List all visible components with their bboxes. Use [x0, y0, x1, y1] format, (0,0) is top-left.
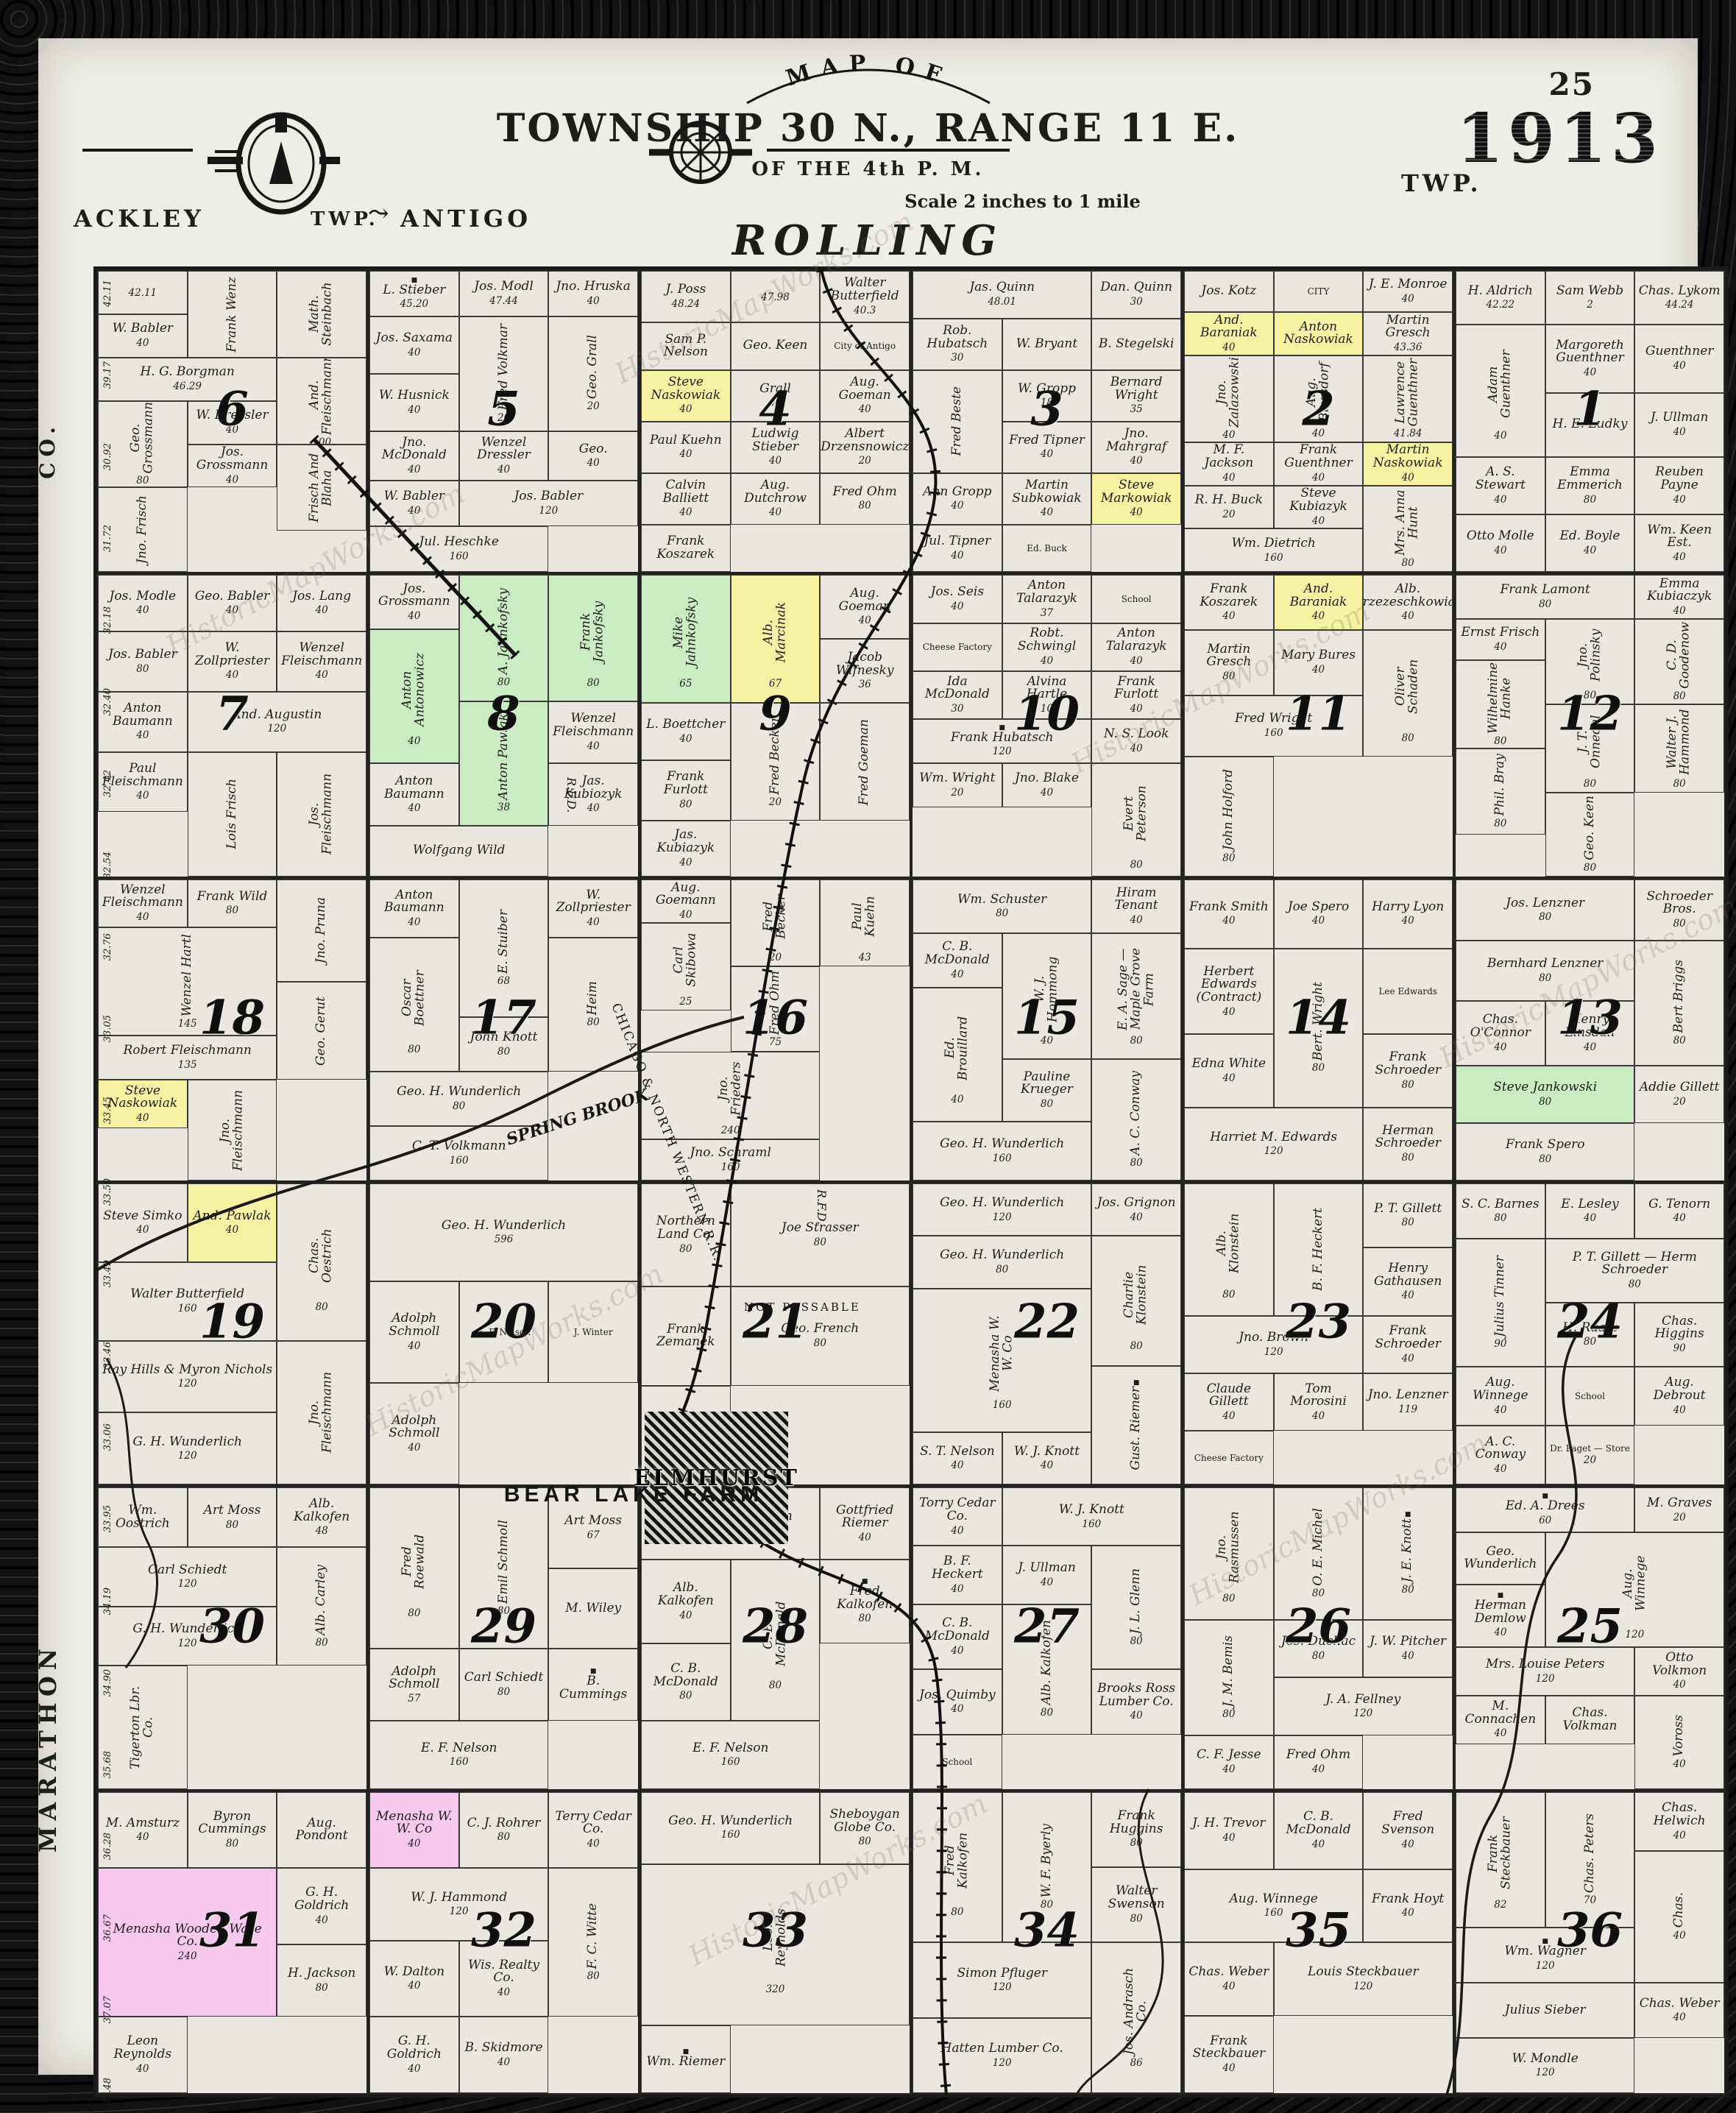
owner-name: Lawrence Guenthner: [1395, 358, 1420, 426]
parcel: Jos. Grignon40: [1091, 1183, 1181, 1236]
owner-name: Frank Steckbauer: [1188, 2035, 1270, 2061]
acreage: 40: [587, 802, 600, 814]
parcel: Charlie Klonstein80: [1091, 1236, 1181, 1366]
acreage: 38: [497, 801, 510, 813]
parcel: A. Jahnkofsky80: [459, 575, 549, 701]
owner-name: Robert Fleischmann: [123, 1044, 251, 1058]
acreage: 80: [453, 1100, 465, 1112]
parcel: Carl Skibowa25: [641, 923, 731, 1011]
owner-name: Wenzel Fleischmann: [280, 642, 363, 668]
owner-name: Alb. Klonstein: [1216, 1199, 1241, 1287]
owner-name: Fred Ohm: [1286, 1749, 1350, 1762]
owner-name: M. F. Jackson: [1188, 444, 1270, 470]
owner-name: Julius Tinner: [1494, 1256, 1507, 1337]
acreage: 40: [1494, 1463, 1506, 1475]
owner-name: G. H. Goldrich: [373, 2035, 456, 2061]
parcel: Frank Guenthner40: [1274, 442, 1364, 486]
parcel: Leo. Reynolds320: [641, 1864, 910, 2025]
parcel: Frank Koszarek: [641, 525, 731, 573]
parcels: Torry Cedar Co.40W. J. Knott160B. F. Hec…: [913, 1487, 1181, 1788]
parcel: Mary Bures40: [1274, 630, 1364, 696]
parcels: ■L. Stieber45.20Jos. Modl47.44Jno. Hrusk…: [369, 271, 638, 572]
owner-name: Harriet M. Edwards: [1210, 1131, 1337, 1144]
parcel: Hatten Lumber Co.120: [913, 2018, 1091, 2093]
owner-name: C. B. McDonald: [916, 941, 999, 966]
acreage: 70: [1584, 1894, 1596, 1906]
acreage: 82: [1494, 1899, 1506, 1911]
owner-name: Oscar Boettner: [401, 954, 427, 1042]
owner-name: Walter Butterfield: [823, 277, 906, 302]
owner-name: Geo. Grall: [587, 335, 600, 399]
parcel: Alb. Marcinak67: [731, 575, 821, 703]
parcel: Jno. Brown120: [1184, 1316, 1363, 1373]
owner-name: Wolfgang Wild: [413, 844, 505, 857]
acreage: 120: [178, 1450, 197, 1462]
parcel: Anton Baumann40: [369, 879, 459, 938]
acreage: 40: [1673, 1404, 1686, 1416]
acreage: 40: [587, 1838, 600, 1850]
parcel: Albert Drzensnowicz20: [820, 422, 910, 473]
parcel: N. S. Look40: [1091, 719, 1181, 763]
parcel: Guenthner40: [1634, 325, 1724, 393]
parcel: Geo. H. Wunderlich80: [913, 1236, 1091, 1288]
parcel: Fred Kalkofen80: [913, 1792, 1002, 1943]
acreage: 120: [1536, 2067, 1555, 2078]
owner-name: W. J. Knott: [1059, 1504, 1124, 1517]
acreage: 80: [1584, 778, 1596, 790]
parcel: Alb. Kalkofen48: [277, 1487, 366, 1547]
owner-name: Fred Kalkofen: [944, 1816, 970, 1905]
parcel: J. Ullman40: [1634, 393, 1724, 457]
acreage: 68: [497, 975, 510, 987]
acreage: 40: [769, 397, 782, 408]
parcel: Sam Webb2: [1545, 271, 1635, 325]
edge-left-co: CO.: [35, 421, 60, 479]
owner-name: Jos. Quimby: [919, 1689, 996, 1702]
owner-name: Herbert Edwards (Contract): [1188, 966, 1270, 1005]
acreage: 80: [859, 1836, 871, 1847]
owner-name: W. J. Hommong: [1034, 945, 1060, 1033]
section-18: Wenzel Fleischmann40Frank Wild80Jno. Pru…: [96, 878, 368, 1182]
parcel: B. Skidmore40: [459, 2017, 549, 2093]
acreage: 40: [1222, 1006, 1235, 1018]
owner-name: W. J. Knott: [1014, 1445, 1080, 1459]
owner-name: Jul. Tipner: [924, 535, 991, 548]
owner-name: Martin Subkowiak: [1006, 479, 1088, 505]
parcel: Julius Tinner90: [1456, 1239, 1545, 1367]
acreage: 40: [408, 404, 420, 416]
parcel: Jno. Frieders240: [641, 1052, 820, 1139]
owner-name: C. D. Goodenow: [1666, 622, 1692, 689]
owner-name: Frank Guenthner: [1278, 444, 1360, 470]
acreage: 40: [1673, 605, 1686, 617]
owner-name: Byron Cummings: [191, 1811, 274, 1836]
parcel: H. G. Borgman46.29: [98, 358, 277, 401]
parcel: Carl Schiedt120: [98, 1547, 277, 1607]
owner-name: H. Jackson: [288, 1967, 355, 1981]
owner-name: Alb. Kalkofen: [645, 1582, 727, 1607]
owner-name: Martin Naskowiak: [1367, 444, 1449, 470]
acreage: 10: [1041, 703, 1053, 715]
acreage: 40: [951, 1583, 963, 1595]
section-27: Torry Cedar Co.40W. J. Knott160B. F. Hec…: [911, 1486, 1183, 1790]
acreage: 41.84: [1394, 428, 1423, 439]
acreage: 80: [408, 1044, 420, 1055]
acreage: 40: [1673, 1679, 1686, 1691]
township-name: ROLLING: [38, 216, 1698, 265]
acreage: 80: [1539, 911, 1551, 923]
acreage: 80: [1130, 1157, 1143, 1169]
edge-acreage-number: 31.72: [102, 525, 113, 552]
acreage: 45.20: [400, 298, 429, 310]
owner-name: Jos. Grossmann: [373, 583, 456, 609]
owner-name: Simon Pfluger: [957, 1967, 1047, 1981]
acreage: 20: [1222, 509, 1235, 520]
parcel: Anton Baumann40: [369, 763, 459, 826]
parcel: Alb. Klonstein80: [1184, 1183, 1274, 1316]
acreage: 40: [679, 1610, 692, 1621]
parcel: W. J. Hommong40: [1002, 933, 1092, 1058]
parcel: Fred Beste: [913, 370, 1002, 473]
landmark-parcel: City of Antigo: [820, 322, 910, 370]
acreage: 40: [1312, 610, 1325, 622]
owner-name: Bernhard Lenzner: [1487, 958, 1604, 971]
landmark-parcel: School: [913, 1735, 1002, 1789]
parcel: Geo. H. Wunderlich160: [641, 1792, 820, 1864]
landmark-parcel: J. Winter: [548, 1281, 638, 1383]
owner-name: Wenzel Dressler: [463, 436, 545, 462]
acreage: 160: [1264, 1907, 1283, 1919]
owner-name: Chas. Oestrich: [308, 1211, 334, 1300]
owner-name: Frank Schroeder: [1367, 1325, 1449, 1351]
parcel: Northern Land Co.80: [641, 1183, 731, 1286]
parcel: Edna White40: [1184, 1034, 1274, 1107]
parcel: Chas. O'Connor40: [1456, 1001, 1545, 1066]
owner-name: Robt. Schwingl: [1006, 627, 1088, 653]
owner-name: Guenthner: [1645, 345, 1713, 358]
parcel: Steve Jankowski80: [1456, 1066, 1634, 1123]
owner-name: Jos. Babler: [514, 490, 583, 503]
acreage: 40: [136, 337, 149, 349]
acreage: 40: [951, 1459, 963, 1471]
parcel: Oliver Schaden80: [1363, 630, 1453, 757]
acreage: 40: [1041, 655, 1053, 667]
acreage: 40: [1312, 915, 1325, 927]
parcel: And. Baraniak40: [1274, 575, 1364, 629]
parcel: Geo. H. Wunderlich80: [369, 1072, 548, 1126]
owner-name: Herman Demlow: [1459, 1599, 1542, 1625]
acreage: 20: [1673, 1096, 1686, 1108]
owner-name: Aug. Dutchrow: [734, 479, 817, 505]
acreage: 20: [497, 412, 510, 424]
acreage: 40: [1673, 1758, 1686, 1770]
section-36: Frank Steckbauer82Chas. Peters70Chas. He…: [1454, 1791, 1726, 2095]
parcel: Pauline Krueger80: [1002, 1059, 1092, 1122]
wheel-emblem-icon: [649, 112, 752, 193]
parcel: F. C. Witte80: [548, 1868, 638, 2017]
acreage: 30: [951, 352, 963, 364]
owner-name: H. Raatz: [1562, 1322, 1618, 1335]
acreage: 20: [587, 400, 600, 412]
parcel: Henry Linsdall40: [1545, 1001, 1635, 1066]
parcel: Frank Schroeder40: [1363, 1316, 1453, 1373]
edge-acreage-number: 36.28: [102, 1833, 113, 1860]
owner-name: Jno. Brown: [1239, 1331, 1308, 1345]
parcel: Wm. Keen Est.40: [1634, 514, 1724, 572]
parcel: Jno. Fleischmann: [188, 1080, 277, 1181]
owner-name: Frank Furlott: [645, 771, 727, 796]
parcels: Geo. H. Wunderlich160Leo. Reynolds320She…: [641, 1792, 910, 2093]
acreage: 40: [497, 2056, 510, 2068]
parcel: Aug. Winnege160: [1184, 1869, 1363, 1943]
owner-name: Anton Naskowiak: [1278, 321, 1360, 347]
owner-name: Jno. Blake: [1015, 772, 1079, 785]
parcel: Fred Volkmar20: [459, 316, 549, 431]
landmark-parcel: School: [1545, 1367, 1635, 1426]
parcel: Jacob Wifnesky36: [820, 639, 910, 703]
parcel: Voross40: [1634, 1696, 1724, 1789]
acreage: 40: [408, 2063, 420, 2075]
parcel: C. T. Volkmann160: [369, 1126, 548, 1181]
acreage: 80: [1222, 1708, 1235, 1720]
parcel: Geo. Keen80: [1545, 793, 1635, 877]
parcel: G. Tenorn40: [1634, 1183, 1724, 1239]
parcel: Joe Spero40: [1274, 879, 1364, 949]
edge-acreage-number: 34.19: [102, 1588, 113, 1615]
owner-name: Fred Volkmar: [497, 324, 511, 410]
landmark-parcel: Cheese Factory: [1184, 1431, 1274, 1484]
acreage: 160: [721, 1161, 740, 1173]
owner-name: Geo. H. Wunderlich: [397, 1086, 521, 1099]
owner-name: B. F. Heckert: [916, 1555, 999, 1581]
section-23: Alb. Klonstein80B. F. HeckertP. T. Gille…: [1183, 1182, 1454, 1486]
section-33: Geo. H. Wunderlich160Leo. Reynolds320She…: [640, 1791, 911, 2095]
owner-name: Jos. Modle: [110, 590, 177, 604]
parcel: Addie Gillett20: [1634, 1066, 1724, 1123]
parcel: Aug. Debrout40: [1634, 1367, 1724, 1426]
owner-name: Wm. Schuster: [957, 893, 1046, 907]
acreage: 40: [1130, 506, 1143, 518]
parcel: Chas. Weber40: [1634, 1983, 1724, 2038]
owner-name: Wm. Riemer: [646, 2056, 725, 2069]
acreage: 40: [1130, 914, 1143, 926]
parcel: ■Ed. A. Drees60: [1456, 1487, 1634, 1532]
parcel: Adolph Schmoll40: [369, 1383, 459, 1484]
parcel: Heim80: [548, 938, 638, 1072]
parcel: Fred Becker20: [731, 703, 821, 821]
acreage: 240: [178, 1950, 197, 1962]
owner-name: G. H. Wunderlich: [132, 1623, 242, 1636]
acreage: 40: [1222, 341, 1235, 353]
parcel: ■Wm. Wagner120: [1456, 1928, 1634, 1983]
acreage: 40: [1673, 360, 1686, 372]
acreage: 30: [1130, 296, 1143, 308]
parcel: And. Pawlak40: [188, 1183, 277, 1262]
owner-name: W. Babler: [384, 490, 444, 503]
owner-name: C. B. McDonald: [645, 1663, 727, 1688]
township-map: 42.11Frank WenzMath. SteinbachH. G. Borg…: [93, 266, 1729, 2098]
acreage: 80: [587, 1970, 600, 1982]
parcel: H. Jackson80: [277, 1944, 366, 2017]
acreage: 80: [587, 677, 600, 689]
owner-name: Aug. Goemann: [645, 882, 727, 907]
owner-name: Jos. Fleischmann: [308, 770, 334, 858]
owner-name: School: [1575, 1392, 1605, 1401]
owner-name: A. C. Conway: [1459, 1436, 1542, 1462]
acreage: 40: [136, 1112, 149, 1124]
acreage: 80: [1130, 1837, 1143, 1849]
acreage: 40: [1041, 1459, 1053, 1471]
owner-name: Carl Schiedt: [148, 1564, 227, 1577]
owner-name: H. G. Borgman: [140, 366, 234, 379]
owner-name: G. H. Goldrich: [280, 1886, 363, 1912]
parcel: Aug. Winnege40: [1456, 1367, 1545, 1426]
acreage: 40: [679, 506, 692, 518]
section-13: Jos. Lenzner80Bernhard Lenzner80Schroede…: [1454, 878, 1726, 1182]
acreage: 80: [679, 1243, 692, 1255]
owner-name: Geo. H. Wunderlich: [442, 1220, 566, 1233]
owner-name: A. C. Conway: [1130, 1071, 1143, 1155]
acreage: 40: [679, 403, 692, 415]
acreage: 40: [136, 790, 149, 801]
acreage: 40: [1673, 1830, 1686, 1841]
section-24: S. C. Barnes80E. Lesley40G. Tenorn40Juli…: [1454, 1182, 1726, 1486]
parcel: J. A. Fellney120: [1274, 1677, 1453, 1735]
owner-name: Jos. Lang: [292, 590, 351, 604]
acreage: 120: [178, 1638, 197, 1649]
owner-name: Menasha Wooden Ware Co.: [102, 1923, 273, 1949]
owner-name: Ed. Boyle: [1560, 530, 1620, 543]
acreage: 43.36: [1394, 341, 1423, 353]
owner-name: O. E. Michel: [1312, 1508, 1325, 1586]
parcel: Aug. Winnege120: [1545, 1532, 1724, 1647]
parcels: Jno. Rasmussen80O. E. Michel80■J. E. Kno…: [1184, 1487, 1453, 1788]
owner-name: Chas. Lykom: [1639, 285, 1721, 298]
owner-name: B. Skidmore: [464, 2042, 542, 2055]
acreage: 80: [1494, 735, 1506, 747]
acreage: 80: [316, 1637, 328, 1649]
owner-name: Geo. Gerut: [315, 997, 328, 1066]
parcel: E. A. Sage — Maple Grove Farm80: [1091, 933, 1181, 1058]
owner-name: Alvina Hartle: [1006, 676, 1088, 701]
owner-name: Geo. French: [781, 1323, 859, 1336]
parcel: W. J. Knott40: [1002, 1432, 1092, 1484]
acreage: 37: [1041, 607, 1053, 619]
acreage: 40: [679, 909, 692, 921]
owner-name: J. Winter: [574, 1328, 613, 1337]
parcel: C. D. Goodenow80: [1634, 619, 1724, 704]
edge-acreage-number: 32.40: [102, 688, 113, 715]
owner-name: J. E. Monroe: [1369, 278, 1448, 291]
parcel: Phil. Bray80: [1456, 748, 1545, 835]
acreage: 40: [679, 448, 692, 460]
parcel: J. E. Monroe40: [1363, 271, 1453, 312]
landmark-parcel: Ed. Buck: [1002, 525, 1092, 573]
residence-icon: ■: [1405, 1512, 1411, 1518]
acreage: 80: [769, 1680, 782, 1691]
acreage: 40: [1402, 1907, 1414, 1919]
parcel: W. F. Byerly80: [1002, 1792, 1092, 1943]
parcel: Aug. Pondont: [277, 1792, 366, 1869]
parcel: Frank Lamont80: [1456, 575, 1634, 619]
owner-name: Alb. Grzezeschkowiak: [1363, 583, 1453, 609]
owner-name: Wm. Dietrich: [1231, 537, 1315, 551]
parcel: Jno. Blake40: [1002, 763, 1092, 807]
owner-name: Jas. Kubiazyk: [645, 829, 727, 854]
scale-note: Scale 2 inches to 1 mile: [347, 191, 1698, 212]
owner-name: C. B. McDonald: [916, 1617, 999, 1643]
section-15: Wm. Schuster80Hiram Tenant40C. B. McDona…: [911, 878, 1183, 1182]
acreage: 160: [1264, 727, 1283, 739]
owner-name: Jno. Zalazowski: [1216, 357, 1241, 428]
owner-name: And. Fleischmann: [308, 358, 334, 435]
section-7: Jos. Modle40Geo. Babler40Jos. Lang40Jos.…: [96, 573, 368, 877]
parcel: Chas. Helwich40: [1634, 1792, 1724, 1851]
parcel: C. B. McDonald40: [913, 933, 1002, 988]
owner-name: J. T. Onnedal: [1577, 707, 1603, 776]
section-25: ■Ed. A. Drees60M. Graves20Geo. Wunderlic…: [1454, 1486, 1726, 1790]
acreage: 40: [136, 1224, 149, 1236]
acreage: 80: [679, 1690, 692, 1702]
parcel: Byron Cummings80: [188, 1792, 277, 1869]
acreage: 40: [587, 916, 600, 928]
acreage: 40: [587, 740, 600, 752]
acreage: 40: [497, 1986, 510, 1998]
owner-name: Alb. Kalkofen: [280, 1498, 363, 1523]
acreage: 80: [1673, 778, 1686, 790]
owner-name: Addie Gillett: [1640, 1081, 1720, 1094]
acreage: 80: [1041, 1707, 1053, 1719]
parcel: A. C. Conway80: [1091, 1059, 1181, 1181]
owner-name: Northern Land Co.: [645, 1215, 727, 1241]
parcel: Geo. French80: [731, 1286, 910, 1386]
owner-name: Fred Roewald: [401, 1518, 427, 1606]
acreage: 80: [587, 1016, 600, 1028]
owner-name: Jos. Saxama: [376, 332, 453, 345]
acreage: 80: [814, 1236, 826, 1248]
parcel: H. Aldrich42.22: [1456, 271, 1545, 325]
owner-name: Bert. Wright: [1312, 982, 1325, 1061]
parcel: Jno. Rasmussen80: [1184, 1487, 1274, 1620]
parcel: G. H. Goldrich40: [277, 1868, 366, 1944]
parcels: Menasha W. W. Co40C. J. Rohrer80W. J. Ha…: [369, 1792, 638, 2093]
owner-name: Wis. Realty Co.: [463, 1959, 545, 1985]
section-grid: 42.11Frank WenzMath. SteinbachH. G. Borg…: [96, 269, 1726, 2095]
acreage: 75: [769, 1036, 782, 1048]
acreage: 120: [1264, 1346, 1283, 1358]
acreage: 80: [1041, 1899, 1053, 1911]
owner-name: Jos. Babler: [108, 648, 177, 662]
acreage: 40: [1041, 1576, 1053, 1588]
acreage: 80: [226, 1519, 238, 1531]
acreage: 80: [497, 1605, 510, 1617]
owner-name: N. S. Look: [1104, 728, 1169, 741]
acreage: 80: [497, 1046, 510, 1058]
parcel: A. C. Conway40: [1456, 1426, 1545, 1484]
parcel: Jos. Quimby40: [913, 1669, 1002, 1735]
owner-name: Lee Edwards: [1378, 987, 1436, 996]
owner-name: Jno. Fleischmann: [308, 1368, 334, 1457]
section-32: Menasha W. W. Co40C. J. Rohrer80W. J. Ha…: [368, 1791, 640, 2095]
section-10: Jos. Seis40Anton Talarazyk37SchoolCheese…: [911, 573, 1183, 877]
acreage: 240: [721, 1125, 740, 1136]
acreage: 160: [721, 1829, 740, 1841]
parcel: W. Gropp18: [1002, 370, 1092, 422]
owner-name: Fred Ohm: [769, 971, 782, 1035]
parcel: Geo. Keen: [731, 322, 821, 370]
section-22: Geo. H. Wunderlich120Jos. Grignon40Geo. …: [911, 1182, 1183, 1486]
acreage: 160: [178, 1303, 197, 1314]
